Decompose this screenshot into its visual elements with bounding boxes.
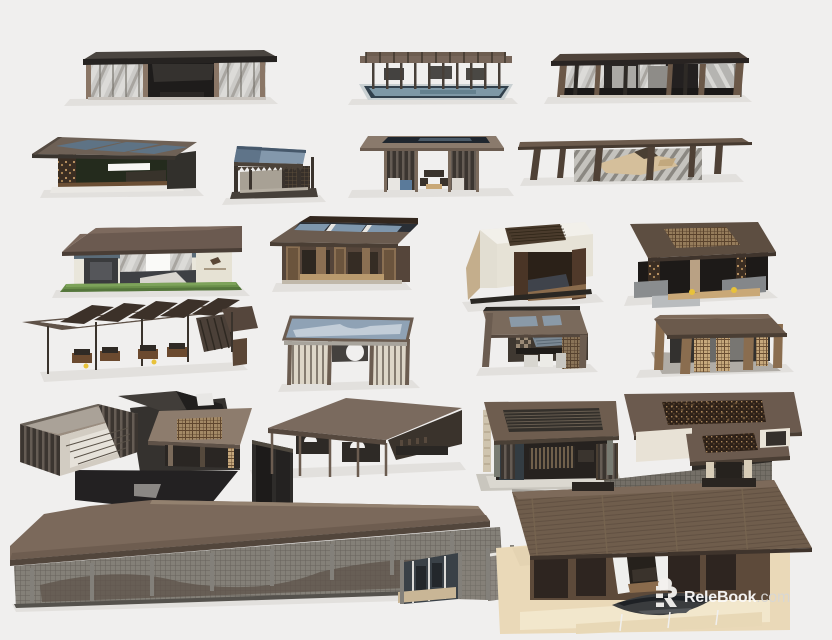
- svg-text:ReleBook.com: ReleBook.com: [684, 589, 790, 606]
